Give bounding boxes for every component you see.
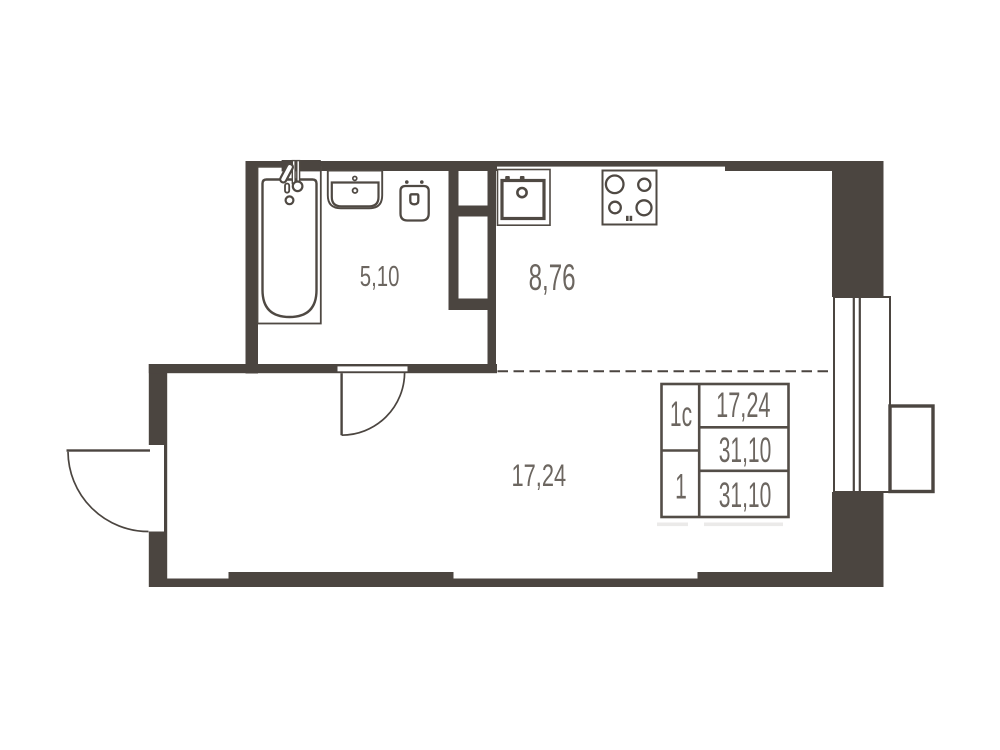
svg-text:31,10: 31,10 xyxy=(719,432,772,471)
svg-text:1с: 1с xyxy=(670,396,692,435)
svg-text:17,24: 17,24 xyxy=(512,457,567,493)
svg-text:31,10: 31,10 xyxy=(719,476,772,515)
svg-text:17,24: 17,24 xyxy=(716,387,770,425)
svg-text:1: 1 xyxy=(675,468,687,507)
svg-text:5,10: 5,10 xyxy=(360,262,400,293)
svg-text:8,76: 8,76 xyxy=(529,257,576,298)
